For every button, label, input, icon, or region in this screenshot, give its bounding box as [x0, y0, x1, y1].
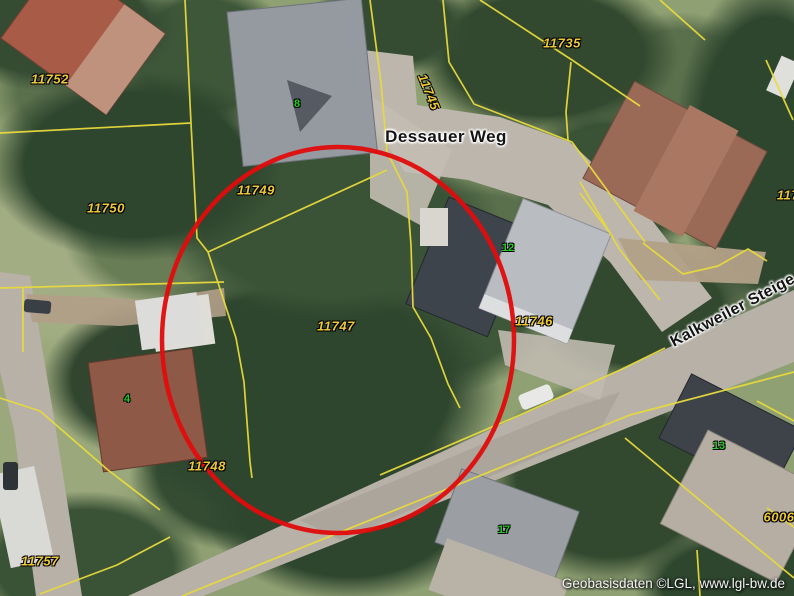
house-number-8: 8	[294, 98, 300, 110]
building-12-entry-white	[420, 208, 448, 246]
house-number-4: 4	[124, 393, 130, 405]
house-number-12: 12	[502, 242, 514, 254]
parcel-label-11748: 11748	[188, 459, 226, 474]
building-8-roof	[227, 0, 377, 166]
parcel-label-11747: 11747	[317, 319, 355, 334]
car-dark-left	[23, 299, 51, 314]
parcel-label-11735: 11735	[543, 36, 581, 51]
house-number-17: 17	[498, 524, 510, 536]
map-overlay-svg	[0, 0, 794, 596]
street-label-dessauer-weg: Dessauer Weg	[385, 127, 507, 147]
parcel-label-117-partial: 117	[777, 188, 794, 203]
aerial-map-viewport[interactable]: 11752 11750 11749 11745 11735 11747 1174…	[0, 0, 794, 596]
parcel-label-11749: 11749	[237, 183, 275, 198]
parcel-label-11750: 11750	[87, 201, 125, 216]
building-4-garage	[135, 292, 203, 350]
parcel-label-11746: 11746	[515, 314, 553, 329]
parcel-label-11752: 11752	[31, 72, 69, 87]
parcel-label-6006: 6006	[764, 510, 794, 525]
building-4-roof	[88, 348, 207, 472]
car-dark-bottomleft	[3, 462, 18, 490]
parcel-label-11757: 11757	[21, 554, 59, 569]
map-attribution: Geobasisdaten ©LGL, www.lgl-bw.de	[562, 576, 785, 591]
driveway-parking	[618, 238, 766, 284]
house-number-13: 13	[713, 440, 725, 452]
